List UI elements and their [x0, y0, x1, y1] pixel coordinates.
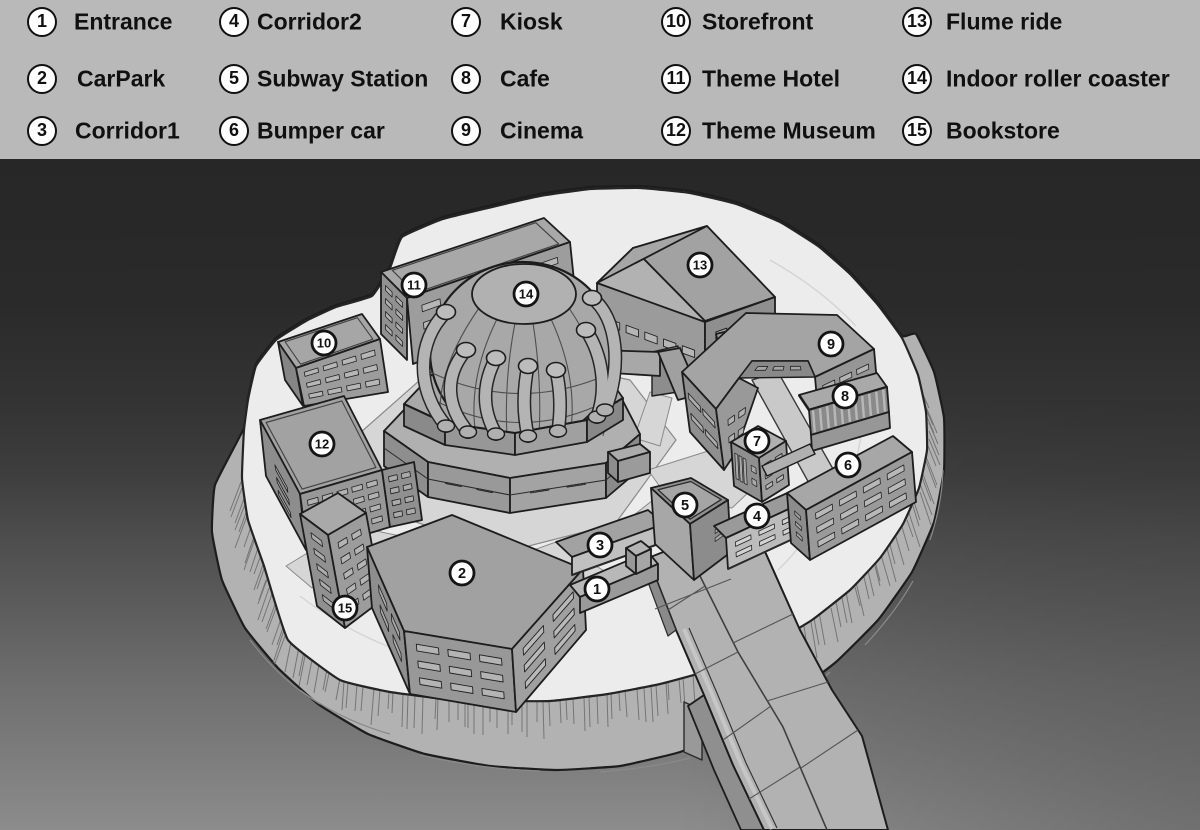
svg-text:8: 8 — [841, 389, 849, 405]
svg-text:4: 4 — [753, 509, 761, 525]
svg-text:12: 12 — [315, 437, 329, 452]
svg-text:11: 11 — [407, 278, 421, 293]
svg-text:7: 7 — [753, 434, 761, 450]
svg-text:3: 3 — [596, 538, 604, 554]
svg-text:6: 6 — [844, 458, 852, 474]
svg-text:14: 14 — [519, 287, 534, 302]
svg-text:10: 10 — [317, 336, 331, 351]
svg-text:1: 1 — [593, 582, 601, 598]
svg-text:5: 5 — [681, 498, 689, 514]
svg-text:9: 9 — [827, 337, 835, 353]
svg-text:2: 2 — [458, 566, 466, 582]
svg-text:15: 15 — [338, 601, 352, 616]
svg-text:13: 13 — [693, 258, 707, 273]
